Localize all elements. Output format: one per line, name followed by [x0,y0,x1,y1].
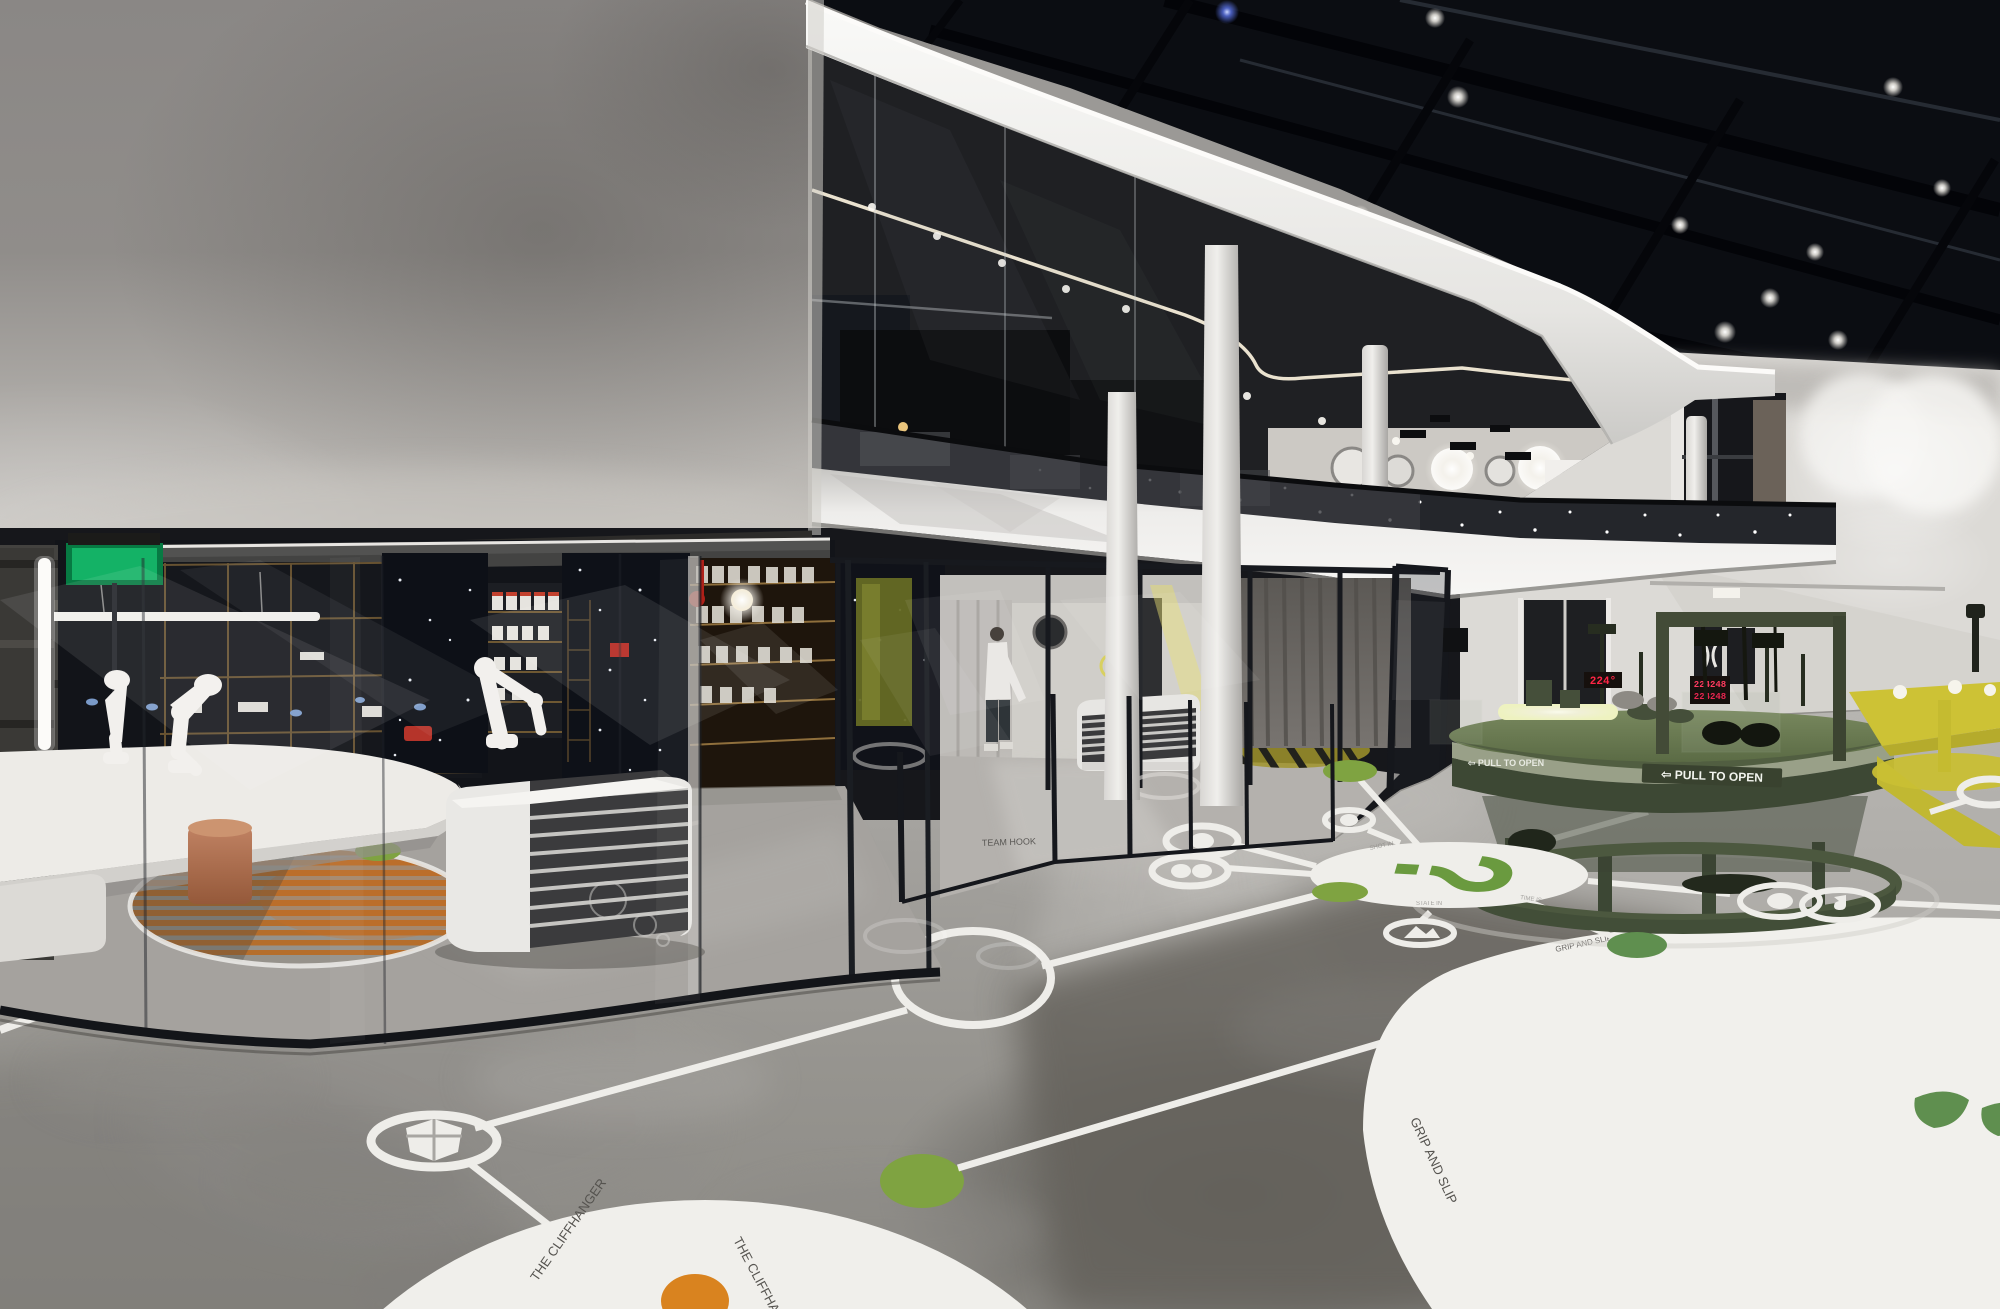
svg-text:TEAM HOOK: TEAM HOOK [982,836,1036,848]
svg-text:224248: 224248 [1694,692,1726,702]
svg-text:⇦ PULL TO OPEN: ⇦ PULL TO OPEN [1467,758,1544,768]
svg-text:224°: 224° [1590,676,1616,688]
svg-text:STATE IN: STATE IN [1416,901,1442,907]
svg-text:224248: 224248 [1694,680,1726,690]
